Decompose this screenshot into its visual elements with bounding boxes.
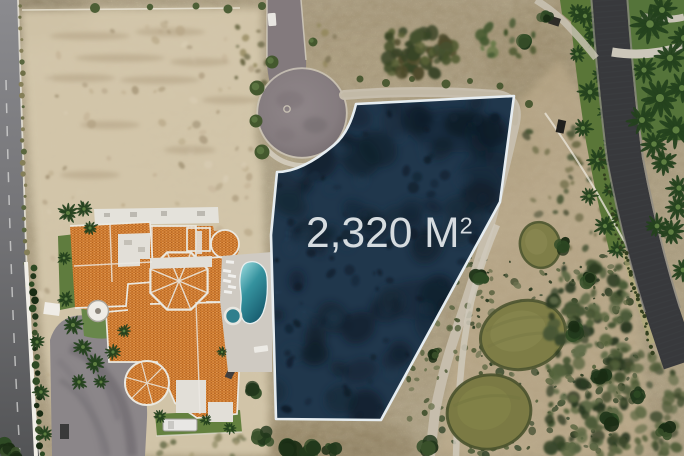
svg-text:2,320 M2: 2,320 M2 <box>306 210 473 257</box>
